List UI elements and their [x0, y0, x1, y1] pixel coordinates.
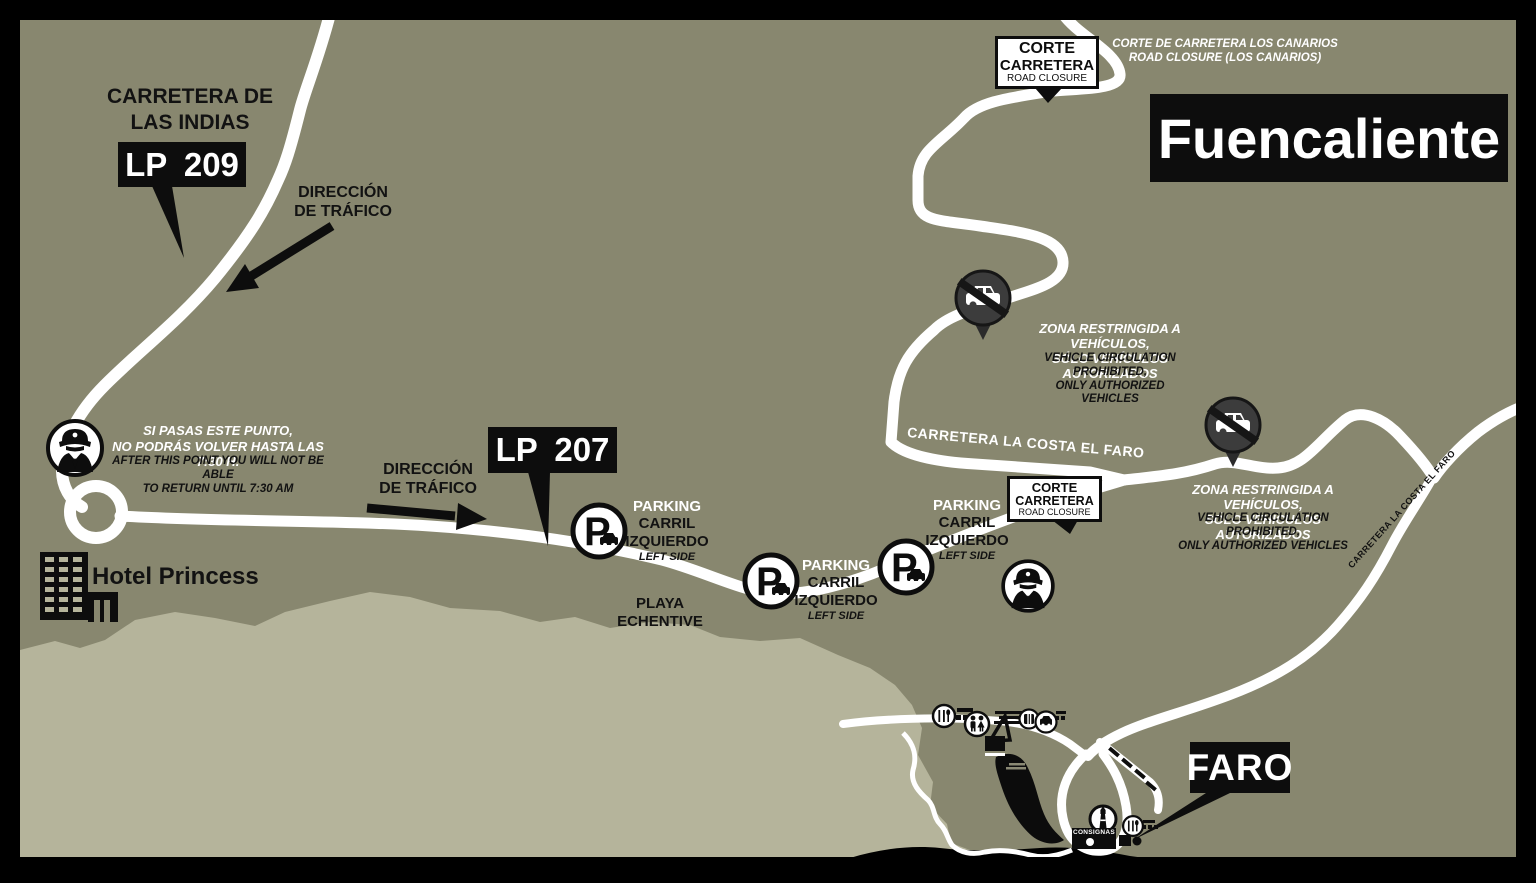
beach-name: PLAYA ECHENTIVE	[600, 595, 720, 631]
parking-side: LEFT SIDE	[611, 551, 723, 564]
lp207-badge[interactable]: LP 207	[488, 427, 617, 473]
wc-icon[interactable]	[965, 712, 989, 736]
los-canarios-closure-note: CORTE DE CARRETERA LOS CANARIOS ROAD CLO…	[1108, 38, 1342, 66]
frame-left	[0, 0, 20, 883]
frame-top	[0, 0, 1536, 20]
traffic-direction-label: DIRECCIÓN DE TRÁFICO	[371, 460, 485, 498]
road-closure-sign[interactable]: CORTE CARRETERA ROAD CLOSURE	[995, 36, 1099, 89]
parking-side: LEFT SIDE	[780, 610, 892, 623]
consignas-dot	[1086, 838, 1094, 846]
hotel-princess-label: Hotel Princess	[92, 563, 352, 592]
restaurant-icon[interactable]	[1123, 816, 1143, 836]
frame-bottom	[0, 857, 1536, 883]
parking-label: PARKING CARRIL IZQUIERDO LEFT SIDE	[611, 498, 723, 563]
vehicle-stop-icon[interactable]	[1036, 712, 1057, 733]
parking-lane: CARRIL IZQUIERDO	[780, 574, 892, 609]
road-closure-sign[interactable]: CORTE CARRETERA ROAD CLOSURE	[1007, 476, 1102, 522]
sign-line: CORTE	[998, 41, 1096, 58]
traffic-direction-label: DIRECCIÓN DE TRÁFICO	[286, 183, 400, 221]
sign-line: ROAD CLOSURE	[998, 74, 1096, 85]
sign-line: CARRETERA	[998, 58, 1096, 74]
sign-line: CARRETERA	[1010, 495, 1099, 508]
consignas-label: CONSIGNAS	[1072, 829, 1116, 837]
building-block	[1133, 837, 1142, 846]
building-block	[1119, 835, 1131, 846]
police-officer-icon[interactable]	[1003, 561, 1053, 611]
sign-line: CORTE	[1010, 481, 1099, 495]
restaurant-icon[interactable]	[933, 705, 955, 727]
police-officer-icon[interactable]	[48, 421, 102, 475]
checkpoint-note-en: AFTER THIS POINT YOU WILL NOT BE ABLE TO…	[103, 455, 333, 496]
parking-title: PARKING	[780, 557, 892, 574]
restricted-zone-note-en: VEHICLE CIRCULATION PROHIBITED, ONLY AUT…	[1173, 512, 1353, 553]
faro-badge[interactable]: FARO	[1190, 742, 1290, 793]
road-name-las-indias: CARRETERA DE LAS INDIAS	[90, 84, 290, 137]
lp209-badge[interactable]: LP 209	[118, 142, 246, 187]
micro-label	[985, 753, 1005, 756]
parking-lane: CARRIL IZQUIERDO	[611, 515, 723, 550]
frame-right	[1516, 0, 1536, 883]
building-block	[985, 736, 1005, 751]
parking-title: PARKING	[611, 498, 723, 515]
fuencaliente-map: P	[0, 0, 1536, 883]
parking-label: PARKING CARRIL IZQUIERDO LEFT SIDE	[780, 557, 892, 622]
restricted-zone-note-en: VEHICLE CIRCULATION PROHIBITED, ONLY AUT…	[1030, 352, 1190, 407]
micro-label	[1006, 767, 1026, 770]
map-title: Fuencaliente	[1150, 94, 1508, 182]
sign-line: ROAD CLOSURE	[1010, 508, 1099, 517]
micro-label	[1009, 763, 1025, 766]
parking-side: LEFT SIDE	[911, 550, 1023, 563]
